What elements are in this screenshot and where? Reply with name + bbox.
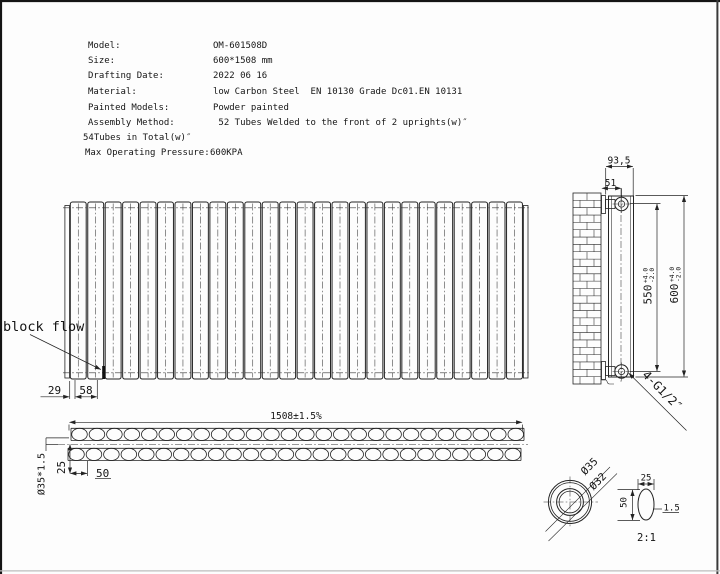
spec-label: 54Tubes in Total(w)″ (83, 132, 208, 144)
spec-label: Max Operating Pressure: (85, 147, 210, 159)
spec-row-painted-models: Painted Models:Powder painted (88, 102, 289, 114)
spec-value: 600*1508 mm (213, 56, 273, 66)
oval-tube-back (491, 428, 507, 440)
oval-tube-front (208, 448, 224, 460)
oval-tube-front (278, 448, 294, 460)
oval-tube-back (508, 428, 524, 440)
spec-value: 600KPA (210, 148, 243, 158)
oval-tube-front (505, 448, 521, 460)
oval-tube-back (194, 428, 210, 440)
right-upright (523, 206, 528, 379)
oval-tube-back (456, 428, 472, 440)
oval-tube-front (348, 448, 364, 460)
dim-oval-height-label: 50 (620, 497, 630, 508)
oval-tube-back (176, 428, 192, 440)
spec-row-assembly-method: Assembly Method: 52 Tubes Welded to the … (88, 117, 468, 129)
spec-row-drafting-date: Drafting Date:2022 06 16 (88, 70, 267, 82)
front-view: block flow 29 58 (3, 202, 530, 399)
spec-row-material: Material:low Carbon Steel EN 10130 Grade… (88, 86, 462, 98)
oval-tube-front (104, 448, 120, 460)
dim-550-tol-minus: -2.0 (649, 268, 656, 283)
oval-tube-back (333, 428, 349, 440)
dim-25-label: 25 (55, 461, 68, 474)
oval-tube-back (351, 428, 367, 440)
oval-tube-back (211, 428, 227, 440)
spec-row-tubes-total: 54Tubes in Total(w)″ (83, 132, 208, 144)
dim-tube-spec-label: Ø35*1.5 (36, 453, 48, 495)
spec-value: 52 Tubes Welded to the front of 2 uprigh… (213, 118, 468, 128)
oval-tube-front (69, 448, 85, 460)
oval-tube-back (421, 428, 437, 440)
oval-tube-front (243, 448, 259, 460)
dim-600-value: 600 (668, 284, 681, 304)
block-flow-label: block flow (3, 319, 85, 335)
dim-1508-label: 1508±1.5% (270, 411, 322, 422)
oval-tube-front (139, 448, 155, 460)
oval-tube-front (226, 448, 242, 460)
detail-oval-view: 25 50 1.5 2:1 (618, 474, 680, 545)
oval-tube-front (313, 448, 329, 460)
oval-tube-front (470, 448, 486, 460)
oval-tube-back (124, 428, 140, 440)
spec-value: low Carbon Steel EN 10130 Grade Dc01.EN … (213, 87, 462, 97)
oval-tube-front (191, 448, 207, 460)
oval-tube-back (316, 428, 332, 440)
oval-tube-back (281, 428, 297, 440)
oval-tube-front (383, 448, 399, 460)
oval-tube-back (229, 428, 245, 440)
spec-label: Painted Models: (88, 102, 213, 114)
drawing-canvas: block flow 29 58 1508±1.5% (0, 0, 720, 574)
oval-tube-front (435, 448, 451, 460)
dim-hole-distance: 550 +4.0 -2.0 (630, 204, 661, 372)
spec-row-size: Size:600*1508 mm (88, 55, 273, 67)
spec-row-model: Model:OM-601508D (88, 40, 267, 52)
detail-scale-label: 2:1 (637, 532, 656, 544)
oval-tube-front (418, 448, 434, 460)
spec-value: Powder painted (213, 103, 289, 113)
dim-oval-width-label: 25 (641, 474, 652, 484)
spec-label: Model: (88, 40, 213, 52)
spec-label: Drafting Date: (88, 70, 213, 82)
oval-tube-front (121, 448, 137, 460)
dim-550-value: 550 (642, 285, 655, 305)
oval-tube-back (386, 428, 402, 440)
oval-tube-front (156, 448, 172, 460)
oval-tube-back (264, 428, 280, 440)
oval-tube-back (89, 428, 105, 440)
block-flow-mark (102, 366, 105, 379)
dim-1508: 1508±1.5% (69, 411, 523, 431)
front-tube-row (68, 448, 521, 460)
brick-pattern (573, 193, 601, 384)
oval-tube-front (365, 448, 381, 460)
oval-tube-front (488, 448, 504, 460)
oval-tube-back (142, 428, 158, 440)
front-left-dimensions: 29 58 (41, 380, 98, 399)
oval-tube-front (453, 448, 469, 460)
oval-tube-back (299, 428, 315, 440)
dim-50-label: 50 (96, 467, 109, 480)
oval-tube-back (107, 428, 123, 440)
spec-table: Model:OM-601508D Size:600*1508 mm Drafti… (88, 0, 688, 200)
dim-29: 29 (48, 384, 61, 397)
detail-section-view: Ø35 Ø32 (544, 456, 618, 541)
spec-value: OM-601508D (213, 41, 267, 51)
back-tube-row (71, 428, 524, 440)
dim-wall-label: 1.5 (664, 504, 680, 514)
oval-tube-back (473, 428, 489, 440)
spec-row-max-pressure: Max Operating Pressure:600KPA (85, 147, 243, 159)
oval-tube-back (72, 428, 88, 440)
top-view: 1508±1.5% Ø35*1.5 (36, 411, 529, 495)
block-flow-arrow (30, 335, 101, 370)
spec-value: 2022 06 16 (213, 71, 267, 81)
oval-tube-back (403, 428, 419, 440)
oval-tube-front (296, 448, 312, 460)
bottom-bracket (602, 362, 631, 385)
dim-600-tol-minus: -2.0 (676, 267, 683, 282)
side-profile (609, 189, 634, 383)
spec-label: Material: (88, 86, 213, 98)
oval-tube-front (173, 448, 189, 460)
oval-tube-back (368, 428, 384, 440)
spec-label: Size: (88, 55, 213, 67)
spec-label: Assembly Method: (88, 117, 213, 129)
top-view-left-dimensions: Ø35*1.5 25 50 (36, 438, 112, 495)
oval-tube-front (86, 448, 102, 460)
dim-58: 58 (79, 384, 92, 397)
oval-tube-front (400, 448, 416, 460)
tube-columns (70, 202, 522, 379)
oval-tube-back (246, 428, 262, 440)
oval-tube-front (261, 448, 277, 460)
oval-tube-back (438, 428, 454, 440)
oval-tube-back (159, 428, 175, 440)
oval-tube-front (330, 448, 346, 460)
